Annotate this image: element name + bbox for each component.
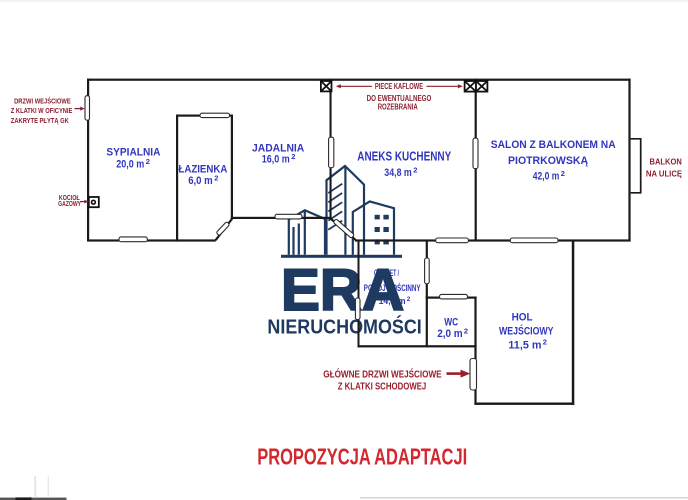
svg-text:2: 2	[413, 165, 417, 174]
svg-text:NA ULICĘ: NA ULICĘ	[646, 169, 682, 178]
svg-text:ERA: ERA	[281, 258, 404, 323]
svg-text:PIECE KAFLOWE: PIECE KAFLOWE	[375, 83, 424, 91]
svg-text:NIERUCHOMOŚCI: NIERUCHOMOŚCI	[267, 316, 421, 339]
svg-text:2: 2	[214, 174, 218, 183]
svg-text:6,0 m: 6,0 m	[188, 176, 212, 188]
svg-text:2: 2	[407, 296, 411, 303]
svg-text:PROPOZYCJA ADAPTACJI: PROPOZYCJA ADAPTACJI	[257, 445, 467, 470]
svg-text:SALON Z BALKONEM NA: SALON Z BALKONEM NA	[491, 139, 616, 152]
svg-text:2,0 m: 2,0 m	[437, 329, 462, 340]
svg-text:ROZEBRANIA: ROZEBRANIA	[378, 104, 418, 112]
svg-text:DO EWENTUALNEGO: DO EWENTUALNEGO	[367, 95, 432, 103]
svg-text:ZAKRYTE PŁYTĄ GK: ZAKRYTE PŁYTĄ GK	[11, 117, 69, 125]
svg-text:JADALNIA: JADALNIA	[252, 142, 304, 154]
svg-text:BALKON: BALKON	[650, 157, 683, 166]
svg-text:GAZOWY: GAZOWY	[58, 200, 82, 208]
svg-text:34,8 m: 34,8 m	[384, 167, 412, 179]
svg-text:2: 2	[146, 157, 150, 166]
svg-text:16,0 m: 16,0 m	[262, 154, 290, 166]
svg-text:42,0 m: 42,0 m	[533, 171, 560, 183]
svg-text:ŁAZIENKA: ŁAZIENKA	[178, 164, 227, 176]
svg-text:DRZWI WEJŚCIOWE: DRZWI WEJŚCIOWE	[14, 96, 71, 106]
svg-text:Z KLATKI W OFICYNIE: Z KLATKI W OFICYNIE	[11, 107, 73, 115]
svg-text:PIOTRKOWSKĄ: PIOTRKOWSKĄ	[508, 155, 588, 167]
svg-text:Z KLATKI SCHODOWEJ: Z KLATKI SCHODOWEJ	[338, 380, 427, 391]
svg-text:WC: WC	[444, 316, 458, 328]
svg-text:2: 2	[291, 152, 295, 161]
svg-text:11,5 m: 11,5 m	[508, 339, 541, 351]
svg-text:ANEKS KUCHENNY: ANEKS KUCHENNY	[357, 150, 451, 163]
svg-text:20,0 m: 20,0 m	[116, 159, 144, 171]
svg-text:2: 2	[464, 326, 468, 335]
svg-text:2: 2	[543, 338, 547, 347]
svg-text:GŁÓWNE DRZWI WEJŚCIOWE: GŁÓWNE DRZWI WEJŚCIOWE	[323, 367, 441, 379]
svg-text:2: 2	[561, 169, 565, 178]
svg-text:WEJŚCIOWY: WEJŚCIOWY	[499, 323, 554, 337]
svg-text:SYPIALNIA: SYPIALNIA	[106, 146, 160, 159]
svg-text:HOL: HOL	[512, 311, 533, 324]
